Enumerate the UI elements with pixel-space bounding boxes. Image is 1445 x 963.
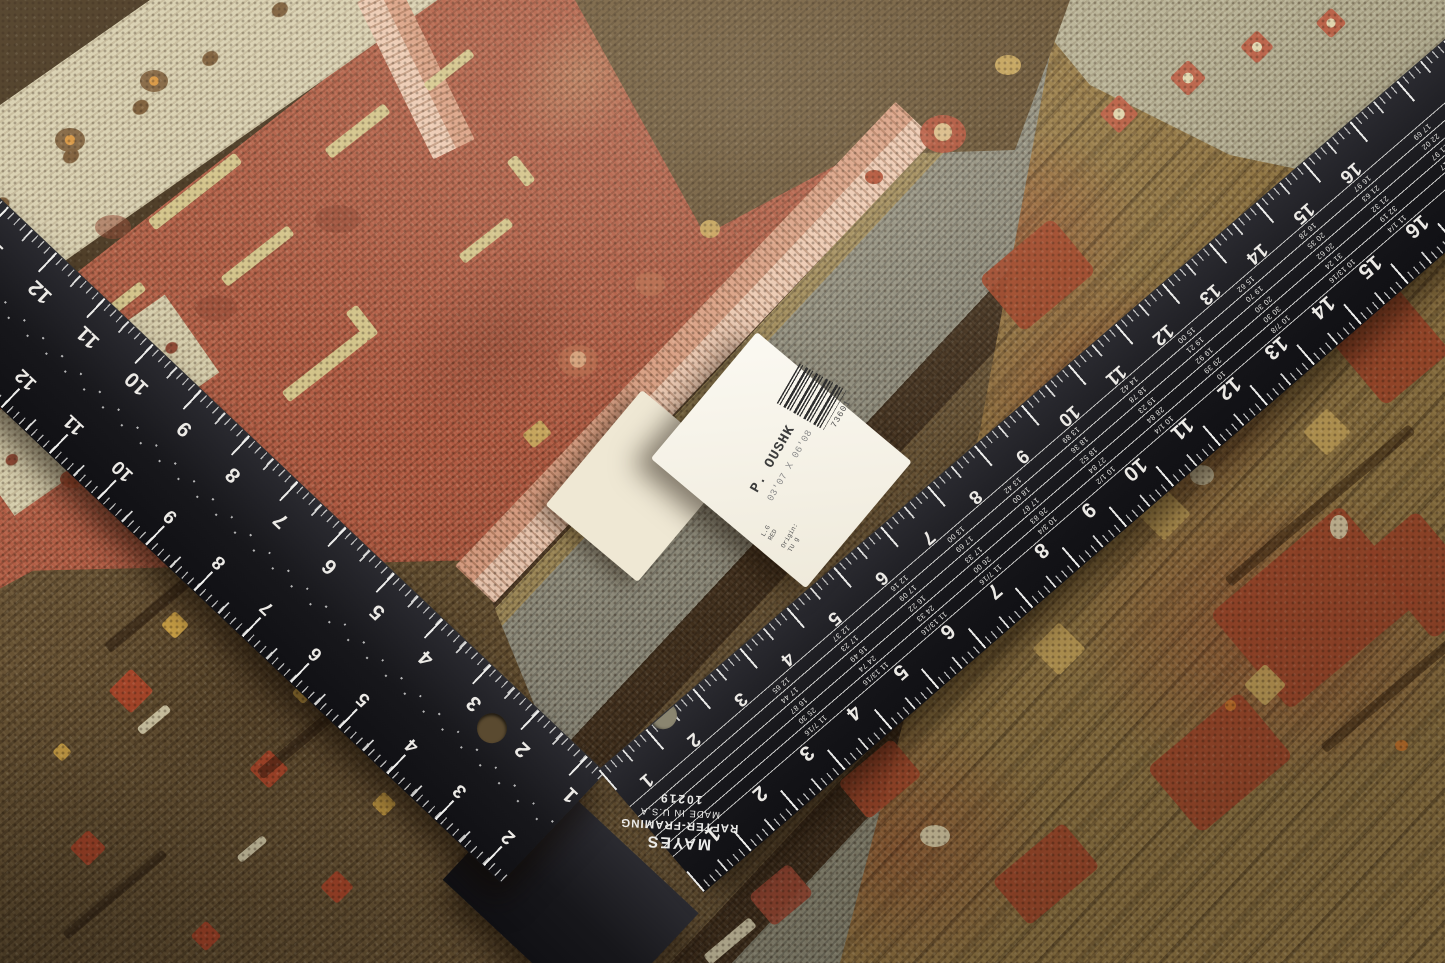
ruler-scale-number: 3 xyxy=(449,779,472,802)
rug-motif xyxy=(700,220,720,238)
ruler-scale-number: 6 xyxy=(304,642,327,665)
rug-motif xyxy=(920,115,966,153)
rug-motif xyxy=(558,345,598,377)
ruler-scale-number: 7 xyxy=(256,596,279,619)
rug-motif xyxy=(1330,515,1348,539)
ruler-scale-number: 4 xyxy=(414,645,439,670)
rug-motif xyxy=(1395,740,1408,751)
ruler-scale-number: 4 xyxy=(401,733,424,756)
rug-motif xyxy=(865,170,883,184)
square-brand-block: MAYES RAFTER-FRAMING MADE IN U.S.A 10219 xyxy=(583,767,777,857)
ruler-scale-number: 2 xyxy=(510,736,535,761)
tag-origin-value: TU xyxy=(787,543,797,553)
rug-motif xyxy=(995,55,1021,75)
ruler-scale-number: 5 xyxy=(352,687,375,710)
rug-motif xyxy=(315,205,361,233)
rug-motif xyxy=(920,825,950,847)
ruler-scale-number: 6 xyxy=(317,553,342,578)
rug-motif xyxy=(1225,700,1236,711)
rug-motif xyxy=(195,295,237,321)
rafter-table-column: 11 7/1633 1721 9722 0217 69 xyxy=(1407,118,1445,186)
ruler-scale-number: 8 xyxy=(208,550,231,573)
rug-motif xyxy=(95,215,131,239)
ruler-scale-number: 7 xyxy=(269,507,294,532)
rug-motif xyxy=(55,128,85,152)
rug-motif xyxy=(635,272,665,296)
ruler-scale-number: 9 xyxy=(172,416,197,441)
tag-origin-note: g xyxy=(793,536,801,543)
ruler-scale-number: 8 xyxy=(221,462,246,487)
ruler-scale-number: 3 xyxy=(462,690,487,715)
rug-motif xyxy=(140,70,168,92)
ruler-scale-number: 2 xyxy=(497,825,520,848)
ruler-scale-number: 9 xyxy=(160,504,183,527)
photo-canvas: 12345678910111213 1234567891011121314 12… xyxy=(0,0,1445,963)
ruler-scale-number: 5 xyxy=(365,599,390,624)
